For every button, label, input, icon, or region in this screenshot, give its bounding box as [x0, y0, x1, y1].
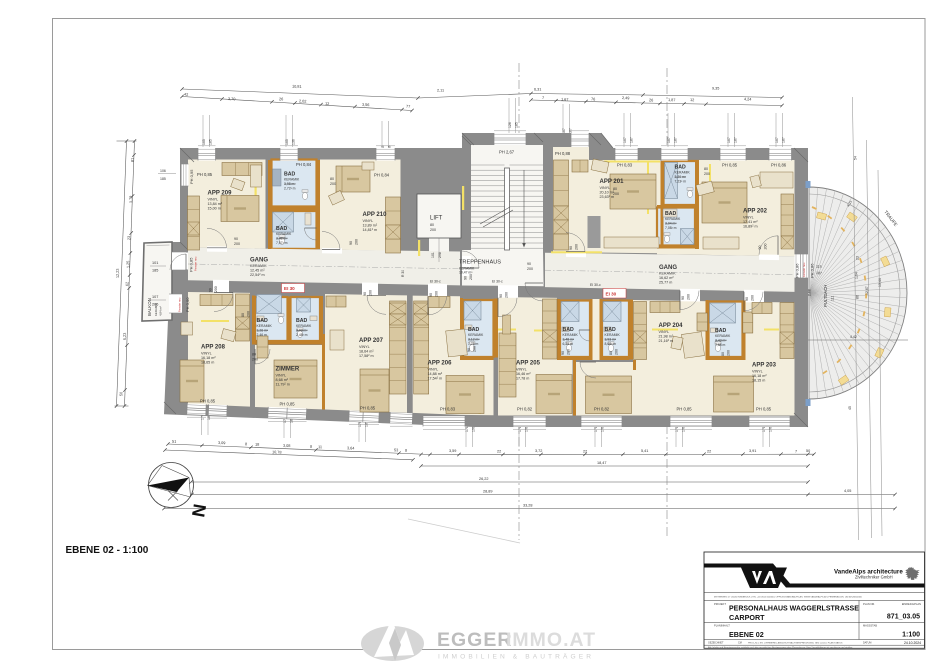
svg-text:3,98 m²: 3,98 m² — [284, 182, 296, 186]
svg-text:90: 90 — [758, 246, 762, 250]
svg-text:15,00 m: 15,00 m — [208, 207, 221, 211]
svg-text:25,77 m: 25,77 m — [659, 281, 672, 285]
svg-text:80: 80 — [330, 177, 334, 181]
svg-text:4,42: 4,42 — [850, 335, 857, 339]
svg-text:APP 205: APP 205 — [516, 361, 541, 367]
svg-text:IMMOBILIEN & BAUTRÄGER: IMMOBILIEN & BAUTRÄGER — [438, 653, 594, 661]
svg-text:PH 0,00: PH 0,00 — [185, 297, 190, 312]
svg-text:5,23: 5,23 — [123, 333, 127, 341]
svg-text:22,54² m: 22,54² m — [250, 273, 265, 277]
svg-text:13,84 m²: 13,84 m² — [208, 202, 223, 206]
svg-text:80: 80 — [609, 351, 613, 355]
svg-text:200: 200 — [575, 244, 579, 250]
svg-text:3,79: 3,79 — [129, 196, 133, 204]
svg-text:80: 80 — [613, 187, 617, 191]
svg-text:BALKON: BALKON — [147, 298, 152, 316]
svg-text:GEZEICHNET: GEZEICHNET — [708, 642, 724, 645]
svg-text:PH 0,85: PH 0,85 — [360, 406, 376, 411]
svg-text:VINYL: VINYL — [208, 198, 219, 202]
svg-text:1,25: 1,25 — [126, 261, 130, 269]
svg-text:200: 200 — [252, 358, 258, 362]
svg-text:EI 30-c: EI 30-c — [590, 283, 601, 287]
svg-text:187: 187 — [816, 271, 822, 275]
svg-text:8: 8 — [405, 449, 407, 453]
svg-text:PH 0,88: PH 0,88 — [555, 151, 571, 156]
svg-text:EI 30-c: EI 30-c — [430, 279, 441, 283]
svg-text:8: 8 — [245, 442, 247, 446]
svg-text:200: 200 — [435, 291, 439, 297]
svg-text:90: 90 — [234, 237, 238, 241]
svg-text:APP 201: APP 201 — [600, 179, 625, 185]
svg-text:200: 200 — [527, 267, 533, 271]
svg-text:200: 200 — [430, 228, 436, 232]
svg-text:28,89: 28,89 — [483, 490, 493, 494]
svg-text:KERAMIK: KERAMIK — [563, 333, 579, 337]
svg-text:Fenster neu: Fenster neu — [178, 297, 182, 312]
svg-text:Alle Inhalte und Eigentumsrech: Alle Inhalte und Eigentumsrechte verblei… — [708, 646, 853, 649]
svg-text:VINYL: VINYL — [752, 370, 763, 374]
svg-text:PULTDACH: PULTDACH — [823, 285, 828, 307]
svg-text:187: 187 — [782, 137, 786, 143]
svg-text:106: 106 — [160, 169, 166, 173]
svg-text:11: 11 — [318, 445, 322, 449]
svg-text:KERAMIK: KERAMIK — [605, 333, 621, 337]
svg-text:PH 0,83: PH 0,83 — [617, 163, 633, 168]
svg-text:7: 7 — [795, 450, 797, 454]
svg-text:266: 266 — [152, 303, 158, 307]
svg-text:KERAMIK: KERAMIK — [675, 171, 691, 175]
svg-text:115: 115 — [816, 265, 822, 269]
svg-text:200: 200 — [687, 294, 691, 300]
svg-text:10,47 m²: 10,47 m² — [459, 271, 473, 275]
svg-text:GANG: GANG — [250, 258, 268, 264]
svg-text:3,04 m²: 3,04 m² — [665, 222, 677, 226]
svg-text:VINYL: VINYL — [743, 215, 754, 219]
svg-text:200: 200 — [473, 346, 477, 352]
svg-text:26,22: 26,22 — [479, 477, 489, 481]
svg-text:1,87: 1,87 — [668, 98, 676, 102]
svg-text:APP 207: APP 207 — [359, 338, 384, 344]
svg-text:VINYL: VINYL — [363, 219, 374, 223]
svg-text:126: 126 — [508, 122, 512, 128]
svg-text:185: 185 — [152, 269, 158, 273]
svg-text:90: 90 — [561, 351, 565, 355]
svg-text:2,46 m: 2,46 m — [257, 333, 268, 337]
svg-text:VINYL: VINYL — [516, 368, 527, 372]
svg-text:18: 18 — [255, 443, 259, 447]
svg-text:80: 80 — [241, 313, 245, 317]
svg-text:PH 0,82: PH 0,82 — [517, 407, 533, 412]
svg-text:R 30: R 30 — [401, 270, 405, 277]
svg-text:PH 0,85: PH 0,85 — [197, 172, 213, 177]
svg-text:PLAN NR.: PLAN NR. — [863, 602, 875, 606]
svg-text:200: 200 — [369, 290, 373, 296]
svg-text:14,88 m²: 14,88 m² — [428, 372, 443, 376]
svg-text:16,18 m²: 16,18 m² — [201, 356, 216, 360]
svg-text:90: 90 — [499, 294, 503, 298]
svg-text:12: 12 — [325, 102, 329, 106]
svg-text:90: 90 — [363, 292, 367, 296]
svg-text:7: 7 — [542, 96, 544, 100]
svg-text:17,58² m: 17,58² m — [359, 354, 374, 358]
svg-text:200: 200 — [567, 349, 571, 355]
svg-text:APP 202: APP 202 — [743, 208, 768, 214]
svg-text:18,47: 18,47 — [597, 461, 607, 465]
svg-text:26: 26 — [279, 97, 283, 101]
svg-text:90: 90 — [429, 293, 433, 297]
svg-text:Fenster neu: Fenster neu — [802, 262, 806, 277]
svg-text:LIFT: LIFT — [430, 216, 443, 222]
svg-text:200: 200 — [247, 311, 251, 317]
svg-text:Ziviltechniker GmbH: Ziviltechniker GmbH — [855, 575, 893, 580]
svg-text:8: 8 — [310, 445, 312, 449]
svg-text:4,05: 4,05 — [844, 489, 851, 493]
svg-text:7,23² m: 7,23² m — [675, 180, 687, 184]
svg-text:PH 0,84: PH 0,84 — [296, 162, 312, 167]
svg-text:PERSONALHAUS WAGGERLSTRASSE: PERSONALHAUS WAGGERLSTRASSE — [729, 606, 859, 613]
svg-text:187: 187 — [734, 137, 738, 143]
svg-text:18,65 m: 18,65 m — [201, 361, 214, 365]
svg-text:1:100: 1:100 — [902, 632, 920, 639]
svg-text:12: 12 — [690, 98, 694, 102]
svg-text:PH 0,86: PH 0,86 — [810, 263, 815, 278]
svg-text:KERAMIK: KERAMIK — [257, 324, 273, 328]
svg-text:90: 90 — [349, 241, 353, 245]
svg-text:3,26 m²: 3,26 m² — [257, 329, 269, 333]
svg-text:12,67: 12,67 — [865, 286, 869, 295]
svg-text:VINYL: VINYL — [359, 345, 370, 349]
svg-text:IMMO.AT: IMMO.AT — [506, 629, 596, 651]
svg-text:TREPPENHAUS: TREPPENHAUS — [459, 260, 501, 266]
svg-text:17,54² m: 17,54² m — [428, 377, 443, 381]
svg-text:871_03.05: 871_03.05 — [887, 614, 920, 621]
svg-text:Fenster neu: Fenster neu — [194, 256, 198, 271]
svg-text:3,09: 3,09 — [218, 441, 226, 445]
svg-text:80: 80 — [721, 352, 725, 356]
svg-text:EGGER: EGGER — [437, 629, 512, 651]
svg-text:105: 105 — [285, 139, 289, 145]
svg-text:200: 200 — [355, 239, 359, 245]
svg-text:136: 136 — [292, 139, 296, 145]
svg-text:17,41 m²: 17,41 m² — [743, 220, 758, 224]
svg-text:187: 187 — [674, 137, 678, 143]
svg-text:APP 204: APP 204 — [659, 323, 684, 329]
svg-text:APP 208: APP 208 — [201, 345, 226, 351]
svg-text:200: 200 — [234, 242, 240, 246]
svg-text:PROJ.-Nr. | 871 | VERMERK | AB: PROJ.-Nr. | 871 | VERMERK | ABGLEICH NAC… — [748, 642, 843, 645]
svg-text:PH 0,85: PH 0,85 — [722, 163, 738, 168]
svg-text:ZIMMER: ZIMMER — [276, 366, 300, 372]
svg-text:107: 107 — [623, 137, 627, 143]
svg-text:18,15 m: 18,15 m — [752, 379, 765, 383]
svg-text:86: 86 — [856, 295, 860, 299]
svg-text:54: 54 — [854, 156, 858, 160]
svg-text:105: 105 — [202, 139, 206, 145]
svg-text:200: 200 — [704, 172, 710, 176]
svg-text:90: 90 — [745, 297, 749, 301]
svg-text:2,49: 2,49 — [622, 96, 630, 100]
svg-text:8,68 m²: 8,68 m² — [276, 378, 289, 382]
svg-text:17,78 m: 17,78 m — [516, 377, 529, 381]
svg-text:APP 209: APP 209 — [208, 191, 233, 197]
svg-text:7,08² m: 7,08² m — [665, 226, 677, 230]
svg-text:200: 200 — [615, 349, 619, 355]
svg-text:9,35: 9,35 — [712, 87, 719, 91]
svg-text:10,81: 10,81 — [292, 85, 302, 89]
svg-text:EINREICHPLAN: EINREICHPLAN — [902, 602, 921, 606]
svg-text:3,20 m²: 3,20 m² — [675, 175, 687, 179]
svg-text:EI 30: EI 30 — [606, 292, 617, 297]
svg-text:16,62 m²: 16,62 m² — [659, 276, 674, 280]
svg-text:200: 200 — [505, 292, 509, 298]
svg-text:23: 23 — [127, 236, 131, 240]
svg-text:PH 0,85: PH 0,85 — [756, 407, 772, 412]
svg-text:APP 203: APP 203 — [752, 363, 777, 369]
svg-text:12,23: 12,23 — [116, 268, 120, 278]
svg-text:5,41: 5,41 — [641, 449, 648, 453]
svg-text:21,98 m²: 21,98 m² — [659, 334, 674, 338]
svg-text:14,81² m: 14,81² m — [363, 228, 378, 232]
svg-text:VINYL: VINYL — [428, 368, 439, 372]
svg-text:PLANINHALT: PLANINHALT — [714, 624, 730, 628]
svg-text:1,64: 1,64 — [855, 272, 859, 279]
svg-text:PH 0,82: PH 0,82 — [594, 407, 610, 412]
svg-text:90: 90 — [681, 296, 685, 300]
svg-text:2,72² m: 2,72² m — [284, 187, 296, 191]
svg-text:3,12 m²: 3,12 m² — [468, 338, 480, 342]
svg-text:24.10.2024: 24.10.2024 — [904, 641, 921, 645]
svg-text:EI 30: EI 30 — [284, 286, 295, 291]
svg-text:42: 42 — [184, 93, 188, 97]
svg-text:CARPORT: CARPORT — [729, 613, 765, 622]
svg-text:PH 2,67: PH 2,67 — [499, 150, 515, 155]
svg-text:111: 111 — [831, 296, 835, 301]
svg-text:90: 90 — [527, 262, 531, 266]
svg-text:200: 200 — [613, 192, 619, 196]
svg-text:VINYL: VINYL — [201, 352, 212, 356]
svg-text:PH 0,95: PH 0,95 — [189, 169, 194, 184]
svg-text:185: 185 — [209, 139, 213, 145]
svg-text:26: 26 — [649, 98, 653, 102]
svg-text:90: 90 — [569, 246, 573, 250]
svg-text:PH 0,85: PH 0,85 — [200, 399, 216, 404]
svg-text:KERAMIK: KERAMIK — [284, 178, 300, 182]
svg-text:22: 22 — [497, 450, 501, 454]
svg-text:EBENE 02: EBENE 02 — [729, 630, 764, 639]
svg-text:16,89² m: 16,89² m — [743, 224, 758, 228]
svg-text:KERAMIK: KERAMIK — [276, 232, 292, 236]
svg-text:11,79² m: 11,79² m — [276, 382, 290, 386]
svg-text:PH 0,85: PH 0,85 — [677, 407, 693, 412]
svg-text:10,78: 10,78 — [272, 450, 282, 454]
svg-text:33,28: 33,28 — [523, 504, 533, 508]
svg-text:4,84 m²: 4,84 m² — [159, 306, 163, 316]
svg-text:107: 107 — [727, 137, 731, 143]
svg-text:PH 0,83: PH 0,83 — [440, 406, 456, 411]
svg-text:2,11: 2,11 — [437, 89, 444, 93]
svg-text:KERAMIK: KERAMIK — [250, 264, 267, 268]
svg-text:107: 107 — [152, 295, 158, 299]
svg-text:KERAMIK: KERAMIK — [715, 334, 731, 338]
svg-text:8,68² m: 8,68² m — [605, 342, 617, 346]
svg-text:200: 200 — [764, 244, 768, 250]
svg-text:3,03 m²: 3,03 m² — [296, 329, 308, 333]
svg-text:3,93 m²: 3,93 m² — [605, 338, 617, 342]
svg-text:2,68: 2,68 — [808, 289, 812, 296]
svg-text:80: 80 — [704, 167, 708, 171]
svg-text:298: 298 — [438, 252, 442, 258]
svg-text:PH 0,86: PH 0,86 — [771, 163, 787, 168]
svg-text:GANG: GANG — [659, 265, 677, 271]
svg-text:21,16² m: 21,16² m — [659, 339, 674, 343]
svg-text:3,59: 3,59 — [449, 449, 456, 453]
svg-text:VINYL: VINYL — [659, 330, 670, 334]
svg-text:22: 22 — [707, 450, 711, 454]
svg-text:3,64: 3,64 — [347, 446, 355, 450]
svg-text:80: 80 — [430, 223, 434, 227]
svg-text:13,44: 13,44 — [878, 278, 882, 287]
svg-text:PH 0,86: PH 0,86 — [795, 263, 800, 278]
svg-text:PROJEKT: PROJEKT — [714, 602, 726, 606]
svg-text:12,45 m²: 12,45 m² — [250, 269, 265, 273]
svg-text:185: 185 — [160, 177, 166, 181]
svg-text:3,91: 3,91 — [749, 449, 756, 453]
svg-text:EBENE 02 - 1:100: EBENE 02 - 1:100 — [66, 545, 149, 556]
svg-text:7,75 m: 7,75 m — [468, 342, 479, 346]
svg-text:101: 101 — [152, 261, 158, 265]
svg-text:DATUM: DATUM — [863, 642, 871, 645]
svg-text:45: 45 — [848, 406, 852, 410]
svg-text:62: 62 — [125, 282, 129, 286]
svg-text:3,70: 3,70 — [228, 97, 236, 101]
svg-text:101: 101 — [431, 252, 435, 258]
svg-text:2,48² m: 2,48² m — [296, 333, 308, 337]
svg-text:EI 30-c: EI 30-c — [492, 280, 503, 284]
svg-text:16,18 m²: 16,18 m² — [752, 374, 767, 378]
svg-text:3,48 m²: 3,48 m² — [563, 338, 575, 342]
svg-text:7,57² m: 7,57² m — [276, 241, 288, 245]
svg-text:200: 200 — [751, 295, 755, 301]
svg-text:16,46 m²: 16,46 m² — [516, 372, 531, 376]
svg-text:51: 51 — [172, 440, 176, 444]
svg-text:3,56: 3,56 — [362, 103, 370, 107]
svg-text:PH 0,84: PH 0,84 — [374, 173, 390, 178]
svg-text:KERAMIK: KERAMIK — [665, 217, 681, 221]
svg-text:200: 200 — [330, 182, 336, 186]
svg-text:23: 23 — [856, 256, 860, 260]
svg-text:187: 187 — [630, 137, 634, 143]
svg-text:PH 0,85: PH 0,85 — [280, 402, 296, 407]
svg-text:200: 200 — [727, 350, 731, 356]
svg-text:KERAMIK: KERAMIK — [296, 324, 312, 328]
svg-text:107: 107 — [775, 137, 779, 143]
svg-text:90: 90 — [464, 276, 468, 280]
svg-text:200: 200 — [214, 286, 218, 292]
svg-text:3,43 m²: 3,43 m² — [715, 339, 727, 343]
svg-text:6,31: 6,31 — [534, 88, 541, 92]
svg-text:7,68 m: 7,68 m — [715, 343, 726, 347]
svg-text:1,67: 1,67 — [561, 98, 569, 102]
svg-text:APP 206: APP 206 — [428, 361, 453, 367]
svg-text:APP 210: APP 210 — [363, 212, 388, 218]
svg-text:2,02: 2,02 — [299, 99, 307, 103]
svg-text:171: 171 — [465, 426, 469, 432]
svg-text:53: 53 — [394, 448, 398, 452]
svg-text:200: 200 — [469, 274, 473, 280]
svg-text:90: 90 — [209, 288, 213, 292]
svg-text:4,24: 4,24 — [744, 97, 752, 101]
svg-text:107: 107 — [667, 137, 671, 143]
svg-text:18,64 m²: 18,64 m² — [359, 350, 374, 354]
svg-text:50: 50 — [119, 392, 123, 396]
svg-text:PH 0,85: PH 0,85 — [189, 257, 194, 272]
svg-text:185: 185 — [515, 122, 519, 128]
svg-text:77: 77 — [406, 105, 410, 109]
svg-text:VINYL: VINYL — [600, 186, 611, 190]
svg-text:23,63² m: 23,63² m — [600, 195, 615, 199]
svg-text:VINYL: VINYL — [276, 373, 287, 377]
svg-text:76: 76 — [591, 97, 595, 101]
svg-text:13,89 m²: 13,89 m² — [363, 223, 378, 227]
svg-text:3,08: 3,08 — [283, 444, 291, 448]
svg-text:MASSSTAB: MASSSTAB — [863, 624, 877, 628]
svg-text:3,48 m²: 3,48 m² — [276, 237, 288, 241]
svg-text:KERAMIK: KERAMIK — [468, 333, 484, 337]
svg-text:81: 81 — [131, 158, 135, 162]
svg-text:6,25 m: 6,25 m — [563, 342, 574, 346]
svg-text:90: 90 — [467, 348, 471, 352]
svg-text:MITTERWEG 17 | 6020 INNSBRUCK: MITTERWEG 17 | 6020 INNSBRUCK | TEL +43 … — [714, 596, 863, 599]
svg-text:80: 80 — [252, 353, 256, 357]
svg-text:CM: CM — [738, 642, 742, 645]
svg-text:3,72: 3,72 — [535, 449, 542, 453]
